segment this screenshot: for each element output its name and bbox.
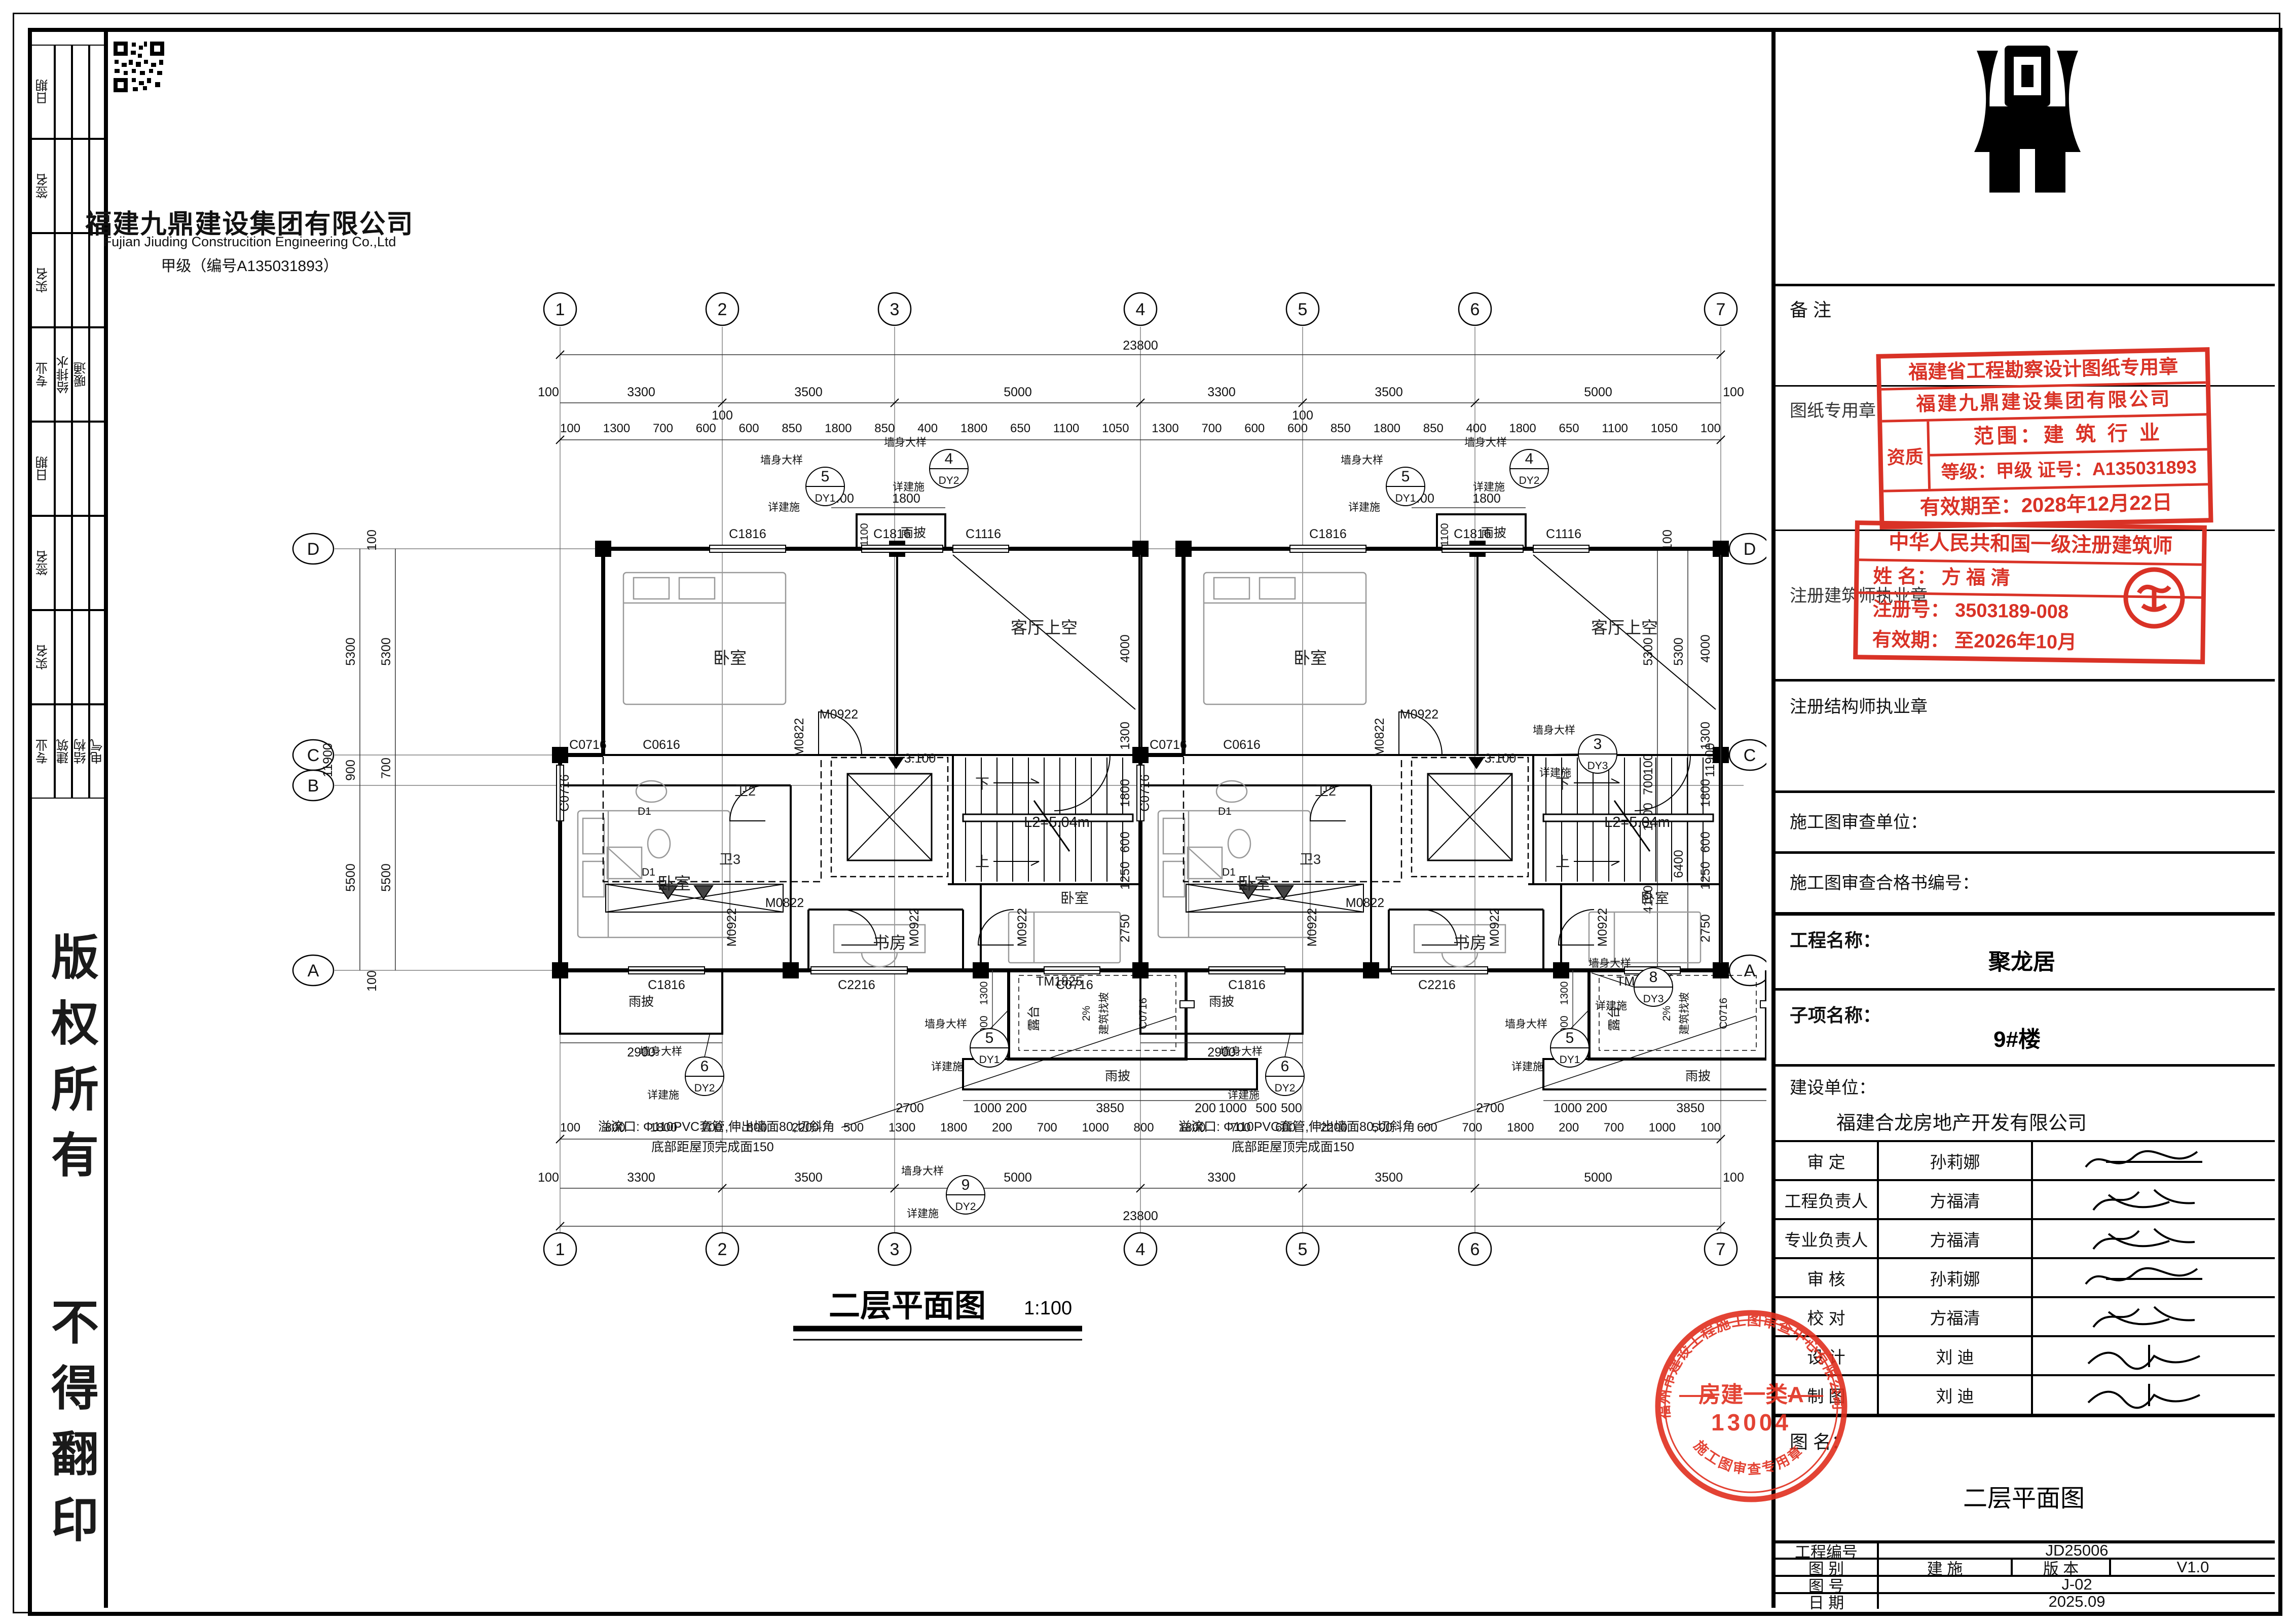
sidebar-cell <box>89 610 105 704</box>
signature-scribble <box>2033 1142 2275 1179</box>
company-grade: 甲级（编号A135031893） <box>0 253 499 276</box>
dim-label: 100 <box>1723 1170 1744 1185</box>
sidebar-cell: 电气 <box>89 704 105 799</box>
dim-label: 100 <box>1723 385 1744 399</box>
stamp-grade: 等级：甲级 证号：A135031893 <box>1930 450 2208 488</box>
callout-num: 9 <box>962 1177 970 1193</box>
dim-label: 5000 <box>1584 385 1612 399</box>
signoff-name: 孙莉娜 <box>1879 1142 2033 1179</box>
sidebar-cell <box>89 45 105 139</box>
signoff-name: 刘 迪 <box>1879 1376 2033 1414</box>
grid-bubble-label: 1 <box>556 1240 565 1259</box>
grid-bubble-label: 2 <box>718 300 727 319</box>
drawing-sheet: 日期 签名 实名 专业 给排水 暖通 日期 签名 实名 专业 建筑 结构 电气 … <box>0 0 2291 1624</box>
signoff-name: 刘 迪 <box>1879 1337 2033 1374</box>
signoff-name: 孙莉娜 <box>1879 1259 2033 1296</box>
bottom-table-row: 图 号 J-02 <box>1776 1575 2275 1592</box>
sidebar-header: 实名 <box>33 645 52 670</box>
signoff-row: 审 定 孙莉娜 <box>1776 1140 2275 1179</box>
callout-ref: DY3 <box>1643 993 1664 1005</box>
sidebar-cell <box>89 422 105 516</box>
sidebar-band-sign2: 签名 <box>30 516 105 610</box>
sidebar-cell <box>55 45 72 139</box>
plan-title: 二层平面图 1:100 <box>793 1289 1082 1340</box>
sidebar-cell <box>72 45 89 139</box>
dim-label: 900 <box>344 760 358 781</box>
callout-9-dy2: 9 DY2 墙身大样 详建施 <box>901 1165 985 1220</box>
grid-bubble-label: 5 <box>1298 300 1308 319</box>
review-unit-section: 施工图审查单位： <box>1776 790 2275 851</box>
callout-ref: DY2 <box>955 1201 976 1213</box>
signature-scribble <box>2033 1298 2275 1335</box>
dim-label: 5300 <box>1672 637 1686 666</box>
dim-label: 5300 <box>344 637 358 666</box>
signature-scribble <box>2033 1376 2275 1414</box>
remark-label: 备 注 <box>1790 295 1831 322</box>
project-name: 聚龙居 <box>1988 943 2055 976</box>
sidebar-cell: 暖通 <box>72 327 89 422</box>
signature-scribble <box>2033 1259 2275 1296</box>
sidebar-header: 专业 <box>33 739 52 764</box>
callout-label: 墙身大样 <box>1588 958 1631 969</box>
sidebar-cell <box>55 516 72 610</box>
stamp-qualification-label: 资质 <box>1882 422 1931 490</box>
round-stamp-arc-bottom: 施工图审查专用章 <box>1691 1438 1806 1477</box>
sidebar-band-date2: 日期 <box>30 422 105 516</box>
sub-project-label: 子项名称： <box>1790 1001 1881 1027</box>
bottom-table-row: 日 期 2025.09 <box>1776 1592 2275 1609</box>
dim-label: 100 <box>538 385 559 399</box>
sidebar-band-major1: 专业 给排水 暖通 <box>30 327 105 422</box>
dim-label: 3500 <box>794 385 823 399</box>
grid-bubble-label: 3 <box>890 300 900 319</box>
dim-label: 100 <box>365 530 379 551</box>
dim-total-height: 11900 <box>321 743 335 777</box>
date-value: 2025.09 <box>1879 1594 2275 1609</box>
sidebar-cell: 签名 <box>30 516 55 610</box>
grid-bubble-label: 6 <box>1470 1240 1480 1259</box>
callout-label: 详建施 <box>1539 767 1571 779</box>
sub-project-name: 9#楼 <box>1993 1021 2041 1053</box>
sidebar-cell <box>72 516 89 610</box>
signoff-row: 专业负责人 方福清 <box>1776 1218 2275 1257</box>
struct-seal-section: 注册结构师执业章 <box>1776 679 2275 790</box>
callout-3-dy3: 3 DY3 墙身大样 详建施 <box>1503 725 1617 779</box>
sidebar-cell <box>55 422 72 516</box>
row-bubble-label: D <box>1744 540 1756 559</box>
grid-bubble-label: 5 <box>1298 1240 1308 1259</box>
callout-label: 墙身大样 <box>901 1165 944 1177</box>
review-no-section: 施工图审查合格书编号： <box>1776 851 2275 912</box>
grid-bubble-label: 6 <box>1470 300 1480 319</box>
sidebar-cell: 给排水 <box>55 327 72 422</box>
category-value: 建 施 <box>1879 1560 2013 1575</box>
category-label: 图 别 <box>1776 1560 1879 1575</box>
sidebar-major: 暖通 <box>71 362 90 387</box>
dim-label: 5300 <box>1641 637 1655 666</box>
callout-num: 8 <box>1649 969 1658 986</box>
company-logo <box>1962 46 2093 198</box>
figure-name: 二层平面图 <box>1963 1478 2085 1514</box>
grid-bubble-label: 1 <box>556 300 565 319</box>
signoff-name: 方福清 <box>1879 1220 2033 1257</box>
grid-bubble-label: 2 <box>718 1240 727 1259</box>
signoff-role: 专业负责人 <box>1776 1220 1879 1257</box>
sidebar-cell: 建筑 <box>55 704 72 799</box>
sidebar-cell <box>72 610 89 704</box>
dim-label: 3300 <box>1207 1170 1236 1185</box>
company-name-en: Fujian Jiuding Construcition Engineering… <box>0 234 499 250</box>
project-name-section: 工程名称： 聚龙居 <box>1776 912 2275 988</box>
sidebar-cell <box>55 610 72 704</box>
callout-label: 墙身大样 <box>1533 725 1575 736</box>
left-dims: 11900 5300 900 5500 5300 700 5500 100 10… <box>321 530 395 992</box>
sidebar-header: 日期 <box>33 79 52 104</box>
dim-label: 700 <box>1641 774 1655 795</box>
copyright-text-2: 不得翻印 <box>36 1297 105 1561</box>
signature-scribble <box>2033 1337 2275 1374</box>
grid-bubbles-bottom: 1 2 3 4 5 6 7 <box>544 1233 1737 1265</box>
grid-bubbles-top: 1 2 3 4 5 6 7 <box>544 293 1737 325</box>
row-bubble-label: D <box>307 540 320 559</box>
grid-bubble-label: 7 <box>1716 1240 1726 1259</box>
review-unit-label: 施工图审查单位： <box>1790 808 1928 833</box>
sub-project-section: 子项名称： 9#楼 <box>1776 988 2275 1064</box>
row-bubble-label: C <box>307 746 320 765</box>
plan-scale-text: 1:100 <box>1024 1298 1072 1319</box>
sidebar-cell: 实名 <box>30 610 55 704</box>
sidebar-major: 结构 <box>71 739 90 764</box>
callout-num: 3 <box>1594 736 1602 752</box>
copyright-text-1: 版权所有 <box>36 932 105 1196</box>
sidebar-band-date: 日期 <box>30 45 105 139</box>
sidebar-cell <box>89 516 105 610</box>
callout-ref: DY3 <box>1587 760 1608 772</box>
dim-label: 5000 <box>1004 1170 1032 1185</box>
stamp-scope: 范围：建 筑 行 业 <box>1929 416 2207 456</box>
sidebar-major: 电气 <box>88 739 106 764</box>
struct-seal-label: 注册结构师执业章 <box>1790 693 1928 717</box>
project-label: 工程名称： <box>1790 926 1881 952</box>
dim-label: 6400 <box>1672 850 1686 878</box>
stamp-validity: 有效期至：2028年12月22日 <box>1883 485 2208 524</box>
top-dims: 23800 100 3300 3500 5000 3300 3500 5000 … <box>538 338 1744 444</box>
dim-label: 3500 <box>794 1170 823 1185</box>
version-label: 版 本 <box>2013 1560 2111 1575</box>
dim-label: 5000 <box>1584 1170 1612 1185</box>
bottom-table-row: 工程编号 JD25006 <box>1776 1540 2275 1558</box>
row-bubble-label: B <box>308 776 319 796</box>
dim-label: 5000 <box>1004 385 1032 399</box>
signoff-role: 工程负责人 <box>1776 1181 1879 1218</box>
grid-bubble-label: 4 <box>1136 300 1145 319</box>
stamp-line: 中华人民共和国一级注册建筑师 <box>1859 525 2202 565</box>
signoff-role: 审 定 <box>1776 1142 1879 1179</box>
dim-total-width: 23800 <box>1123 1209 1158 1223</box>
version-value: V1.0 <box>2111 1560 2275 1575</box>
row-bubbles: D C B A D C A <box>293 534 1766 986</box>
dim-label: 100 <box>538 1170 559 1185</box>
sidebar-major: 给排水 <box>54 356 72 394</box>
round-stamp-class: 房建一类A <box>1698 1382 1804 1407</box>
round-stamp-number: 13004 <box>1711 1409 1791 1436</box>
row-bubble-label: C <box>1744 746 1756 765</box>
review-round-stamp: 福州市建设工程施工图审查中心有限公司 施工图审查专用章 房建一类A 13004 <box>1650 1305 1853 1507</box>
signoff-row: 工程负责人 方福清 <box>1776 1179 2275 1218</box>
review-no-label: 施工图审查合格书编号： <box>1790 869 1979 894</box>
sidebar-header: 签名 <box>33 550 52 576</box>
plan-title-text: 二层平面图 <box>829 1289 986 1324</box>
dim-label: 5300 <box>379 637 393 666</box>
sidebar-cell: 专业 <box>30 704 55 799</box>
grid-bubble-label: 4 <box>1136 1240 1145 1259</box>
signature-scribble <box>2033 1220 2275 1257</box>
sidebar-band-major2: 专业 建筑 结构 电气 <box>30 704 105 799</box>
client-section: 建设单位： 福建合龙房地产开发有限公司 <box>1776 1064 2275 1140</box>
sidebar-cell: 日期 <box>30 45 55 139</box>
architect-stamp-seal-icon <box>2121 565 2187 631</box>
dim-label: 100 <box>712 408 733 423</box>
dim-label: 3300 <box>627 1170 655 1185</box>
dim-label: 3300 <box>627 385 655 399</box>
sidebar-cell: 日期 <box>30 422 55 516</box>
dim-label: 3500 <box>1375 385 1403 399</box>
sidebar-header: 签名 <box>33 173 52 199</box>
svg-text:施工图审查专用章: 施工图审查专用章 <box>1691 1438 1806 1477</box>
grid-bubble-label: 7 <box>1716 300 1726 319</box>
dim-label: 3500 <box>1375 1170 1403 1185</box>
sheet-no-value: J-02 <box>1879 1577 2275 1592</box>
grid-bubble-label: 3 <box>890 1240 900 1259</box>
callout-label: 详建施 <box>1595 1000 1627 1012</box>
dim-total-width: 23800 <box>1123 338 1158 353</box>
sidebar-band-name2: 实名 <box>30 610 105 704</box>
dim-label: 100 <box>1292 408 1313 423</box>
sidebar-header: 专业 <box>33 362 52 387</box>
date-label: 日 期 <box>1776 1594 1879 1609</box>
dim-label: 100 <box>1641 753 1655 775</box>
signoff-name: 方福清 <box>1879 1298 2033 1335</box>
sidebar-cell <box>89 327 105 422</box>
row-bubble-label: A <box>308 961 319 980</box>
signoff-row: 审 核 孙莉娜 <box>1776 1257 2275 1296</box>
client-name: 福建合龙房地产开发有限公司 <box>1836 1107 2087 1135</box>
sidebar-header: 日期 <box>33 456 52 481</box>
dim-label: 100 <box>365 970 379 992</box>
sidebar-cell: 专业 <box>30 327 55 422</box>
dim-label: 5500 <box>344 863 358 892</box>
dim-label: 5500 <box>379 863 393 892</box>
client-label: 建设单位： <box>1790 1074 1876 1099</box>
design-institute-stamp: 福建省工程勘察设计图纸专用章 福建九鼎建设集团有限公司 资质 范围：建 筑 行 … <box>1876 347 2213 530</box>
dim-label: 700 <box>379 758 393 779</box>
bottom-table-row: 图 别 建 施 版 本 V1.0 <box>1776 1558 2275 1575</box>
sidebar-cell: 结构 <box>72 704 89 799</box>
sheet-seal-label: 图纸专用章 <box>1790 397 1876 422</box>
signoff-name: 方福清 <box>1879 1181 2033 1218</box>
callout-label: 详建施 <box>907 1208 939 1220</box>
signoff-role: 审 核 <box>1776 1259 1879 1296</box>
row-bubble-label: A <box>1744 961 1756 980</box>
signature-scribble <box>2033 1181 2275 1218</box>
sidebar-cell <box>72 422 89 516</box>
sidebar-major: 建筑 <box>54 739 72 764</box>
dim-label: 3300 <box>1207 385 1236 399</box>
